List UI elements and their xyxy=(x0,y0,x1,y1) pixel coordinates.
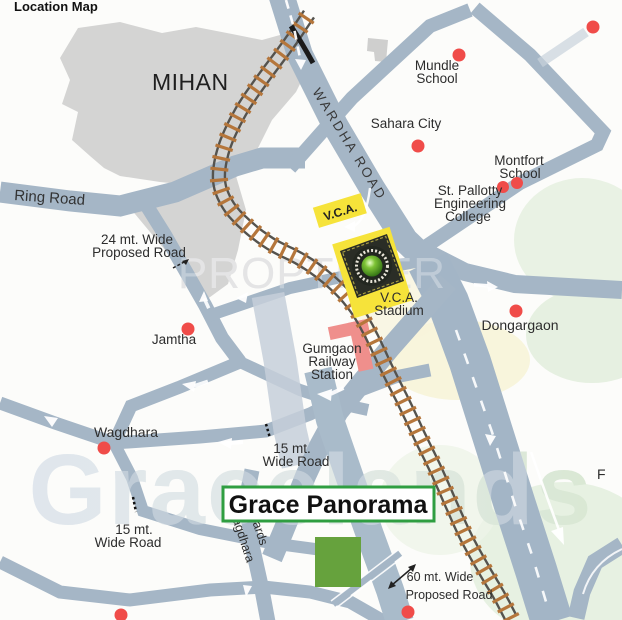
svg-text:Station: Station xyxy=(311,367,353,382)
svg-text:Wide Road: Wide Road xyxy=(263,454,330,469)
svg-text:Dongargaon: Dongargaon xyxy=(481,317,558,333)
svg-text:Grace Panorama: Grace Panorama xyxy=(229,491,429,519)
svg-text:MIHAN: MIHAN xyxy=(152,69,229,95)
svg-text:Wagdhara: Wagdhara xyxy=(94,424,158,440)
svg-text:60 mt. Wide: 60 mt. Wide xyxy=(407,570,474,584)
svg-text:College: College xyxy=(445,209,491,224)
svg-text:Wide Road: Wide Road xyxy=(95,535,162,550)
svg-text:Jamtha: Jamtha xyxy=(152,332,197,347)
svg-text:F: F xyxy=(597,466,606,482)
svg-text:Proposed Road: Proposed Road xyxy=(92,245,186,260)
svg-text:Stadium: Stadium xyxy=(374,303,424,318)
svg-text:Location Map: Location Map xyxy=(14,0,98,14)
svg-text:Proposed Road: Proposed Road xyxy=(406,588,493,602)
svg-text:School: School xyxy=(416,71,457,86)
svg-text:Sahara City: Sahara City xyxy=(371,116,442,131)
